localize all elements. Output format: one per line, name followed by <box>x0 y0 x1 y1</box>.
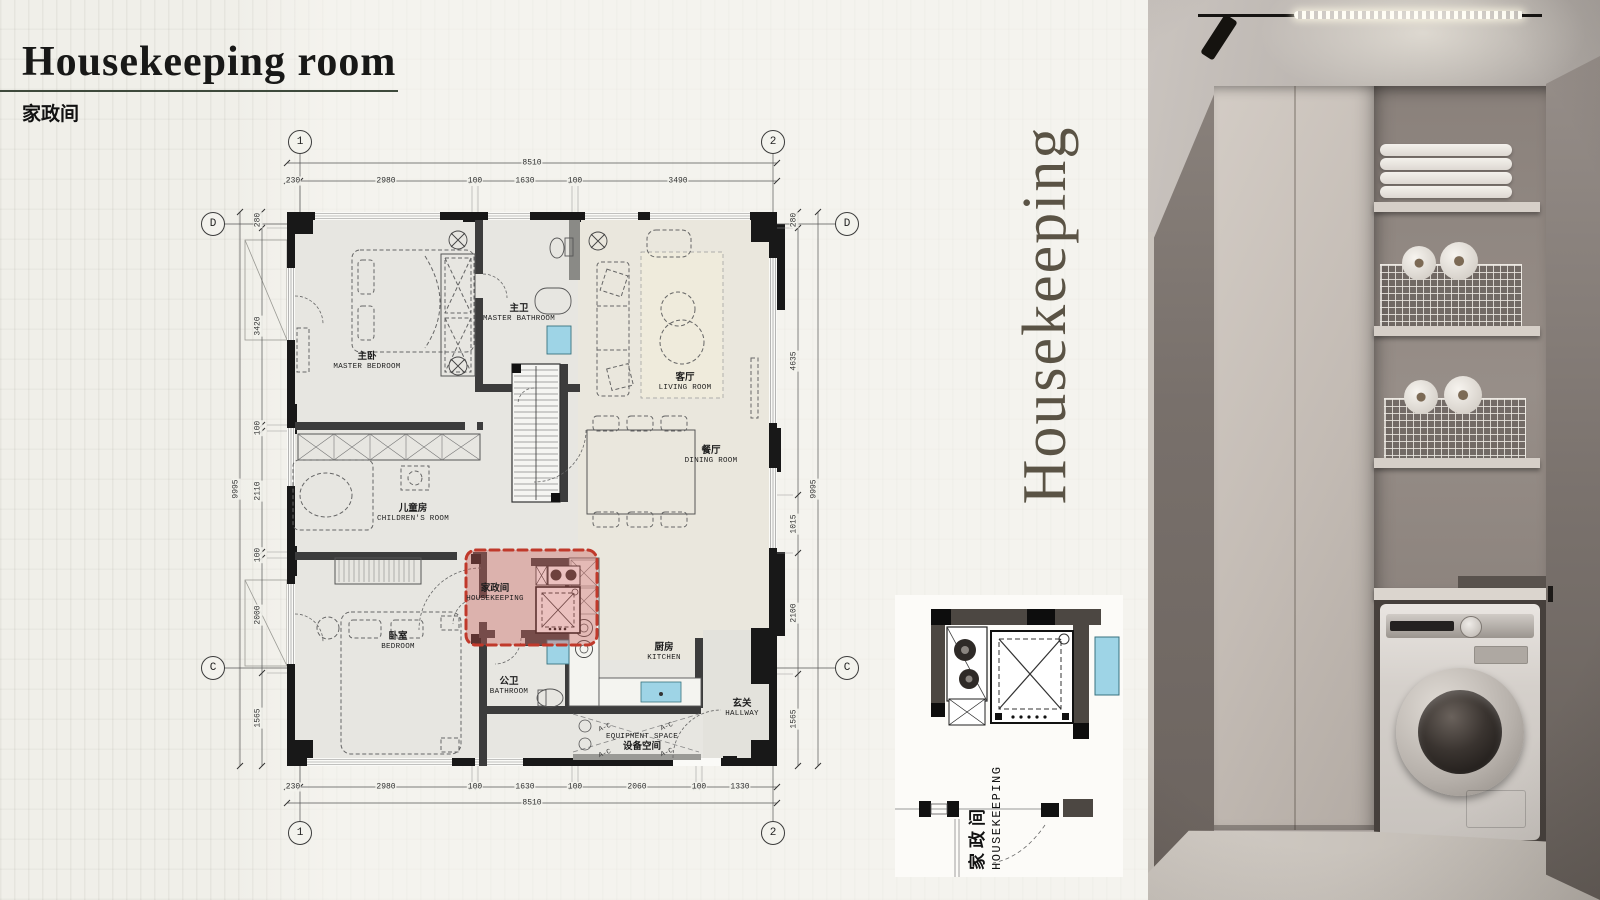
page-title: Housekeeping room <box>22 38 396 86</box>
dim-top-total: 8510 <box>521 159 542 168</box>
grid-bubble-1-bottom: 1 <box>288 821 312 845</box>
dim-left-seg: 280 <box>254 212 263 228</box>
room-label-kitchen: 厨房 KITCHEN <box>647 643 681 663</box>
room-label-children-room: 儿童房 CHILDREN'S ROOM <box>377 504 449 524</box>
room-label-housekeeping: 家政间 HOUSEKEEPING <box>466 584 524 604</box>
dim-left-total: 9995 <box>232 478 241 499</box>
dim-left-seg: 100 <box>254 547 263 563</box>
dim-right-seg: 280 <box>790 212 799 228</box>
detail-plan-graphic <box>895 595 1123 877</box>
dim-bottom-seg: 2060 <box>626 783 647 792</box>
dim-top-seg: 2980 <box>375 177 396 186</box>
dim-bottom-seg: 100 <box>467 783 483 792</box>
dim-bottom-seg: 1330 <box>729 783 750 792</box>
dim-left-seg: 2110 <box>254 480 263 501</box>
dim-bottom-seg: 100 <box>691 783 707 792</box>
floor-plan-graphic <box>195 128 865 868</box>
grid-bubble-2-bottom: 2 <box>761 821 785 845</box>
dim-right-seg: 4635 <box>790 350 799 371</box>
dim-top-seg: 3490 <box>667 177 688 186</box>
dim-right-seg: 2100 <box>790 602 799 623</box>
room-label-living-room: 客厅 LIVING ROOM <box>659 373 712 393</box>
dim-top-seg: 100 <box>567 177 583 186</box>
dim-bottom-seg: 1630 <box>514 783 535 792</box>
vertical-side-label: Housekeeping <box>1000 100 1090 530</box>
shaft-riser <box>512 364 560 502</box>
dim-left-seg: 3420 <box>254 315 263 336</box>
presentation-slide: Housekeeping room 家政间 Housekeeping <box>0 0 1600 900</box>
grid-bubble-1-top: 1 <box>288 130 312 154</box>
title-underline <box>0 90 398 92</box>
grid-bubble-2-top: 2 <box>761 130 785 154</box>
room-label-bedroom: 卧室 BEDROOM <box>381 632 415 652</box>
floor-plan: 1 2 1 2 D C D C 8510 230 2980 100 1630 1… <box>195 128 865 868</box>
room-label-master-bathroom: 主卫 MASTER BATHROOM <box>483 304 555 324</box>
dim-bottom-total: 8510 <box>521 799 542 808</box>
dim-left-seg: 2000 <box>254 604 263 625</box>
grid-bubble-c-left: C <box>201 656 225 680</box>
housekeeping-detail-plan: 家政间 HOUSEKEEPING <box>895 595 1123 877</box>
grid-bubble-d-right: D <box>835 212 859 236</box>
dim-right-seg: 1015 <box>790 513 799 534</box>
room-label-bathroom: 公卫 BATHROOM <box>490 677 528 697</box>
room-label-hallway: 玄关 HALLWAY <box>725 699 759 719</box>
dim-bottom-seg: 100 <box>567 783 583 792</box>
dim-right-total: 9995 <box>810 478 819 499</box>
room-label-master-bedroom: 主卧 MASTER BEDROOM <box>333 352 400 372</box>
housekeeping-room-photo <box>1148 0 1600 900</box>
detail-plan-label: 家政间 HOUSEKEEPING <box>963 720 1009 870</box>
room-label-dining-room: 餐厅 DINING ROOM <box>685 446 738 466</box>
balcony-outlines <box>245 240 287 666</box>
dim-left-seg: 1565 <box>254 707 263 728</box>
grid-bubble-c-right: C <box>835 656 859 680</box>
dim-top-seg: 100 <box>467 177 483 186</box>
dim-right-seg: 1565 <box>790 708 799 729</box>
page-subtitle-zh: 家政间 <box>22 99 79 126</box>
grid-bubble-d-left: D <box>201 212 225 236</box>
dim-left-seg: 100 <box>254 420 263 436</box>
dim-top-seg: 1630 <box>514 177 535 186</box>
dim-bottom-seg: 230 <box>285 783 301 792</box>
dim-top-seg: 230 <box>285 177 301 186</box>
dim-bottom-seg: 2980 <box>375 783 396 792</box>
photo-vignette <box>1148 0 1600 900</box>
